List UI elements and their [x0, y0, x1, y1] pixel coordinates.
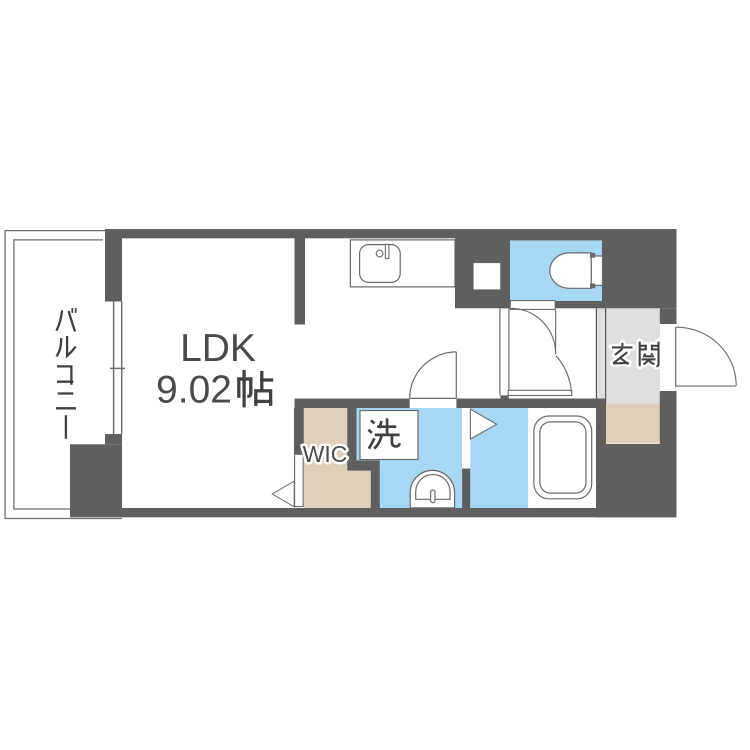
svg-text:9.02: 9.02	[156, 369, 232, 412]
svg-text:WIC: WIC	[303, 441, 348, 467]
svg-text:LDK: LDK	[180, 327, 256, 370]
